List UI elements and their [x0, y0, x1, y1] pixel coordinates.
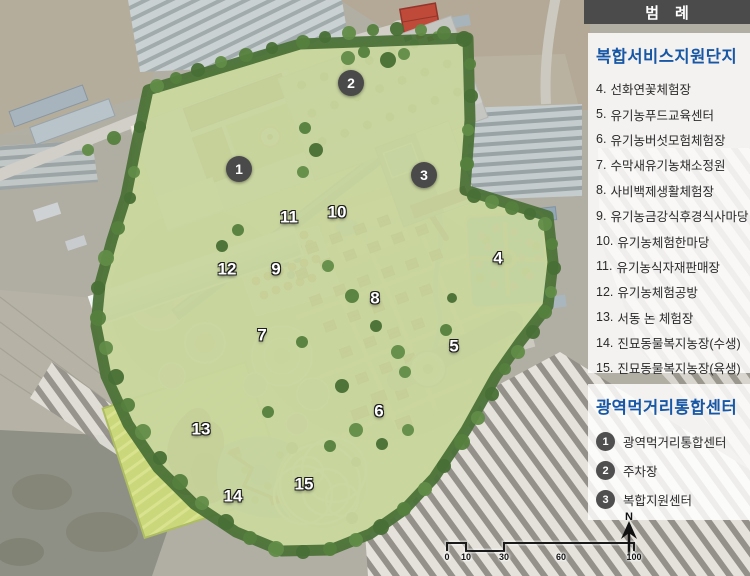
legend-badge-3: 3 — [596, 490, 615, 509]
legend-panel-center: 광역먹거리통합센터 1광역먹거리통합센터2주차장3복합지원센터 — [588, 384, 750, 520]
legend-item-11: 11.유기농식자재판매장 — [596, 254, 746, 279]
map-number-9: 9 — [271, 261, 280, 278]
north-label: N — [625, 511, 633, 523]
legend-item-9: 9.유기농금강식후경식사마당 — [596, 203, 746, 228]
map-number-4: 4 — [493, 250, 502, 267]
map-badge-2: 2 — [338, 70, 364, 96]
legend-item-center-2: 2주차장 — [596, 456, 746, 485]
site-plan-map: 123456789101112131415 범례 복합서비스지원단지 4.선화연… — [0, 0, 750, 576]
legend-title-bar: 범례 — [584, 0, 750, 24]
map-badge-1: 1 — [226, 156, 252, 182]
map-number-10: 10 — [328, 204, 347, 221]
scale-label-10: 10 — [461, 552, 471, 562]
legend-item-6: 6.유기농버섯모험체험장 — [596, 127, 746, 152]
legend-heading-complex: 복합서비스지원단지 — [596, 43, 746, 67]
legend-item-7: 7.수막새유기농채소정원 — [596, 152, 746, 177]
legend-item-13: 13.서동 논 체험장 — [596, 305, 746, 330]
legend-item-10: 10.유기농체험한마당 — [596, 228, 746, 253]
legend-item-8: 8.사비백제생활체험장 — [596, 178, 746, 203]
map-number-5: 5 — [449, 338, 458, 355]
legend-list-complex: 4.선화연꽃체험장5.유기농푸드교육센터6.유기농버섯모험체험장7.수막새유기농… — [596, 76, 746, 381]
map-number-11: 11 — [280, 209, 298, 226]
map-number-12: 12 — [218, 261, 237, 278]
scale-label-60: 60 — [556, 552, 566, 562]
map-badge-3: 3 — [411, 162, 437, 188]
legend-list-center: 1광역먹거리통합센터2주차장3복합지원센터 — [596, 427, 746, 514]
legend-heading-center: 광역먹거리통합센터 — [596, 394, 746, 418]
map-number-6: 6 — [374, 403, 383, 420]
legend-item-5: 5.유기농푸드교육센터 — [596, 101, 746, 126]
legend-item-12: 12.유기농체험공방 — [596, 279, 746, 304]
legend-title: 범례 — [629, 2, 705, 23]
legend-item-center-1: 1광역먹거리통합센터 — [596, 427, 746, 456]
legend-badge-2: 2 — [596, 461, 615, 480]
legend-item-4: 4.선화연꽃체험장 — [596, 76, 746, 101]
legend-item-15: 15.진묘동물복지농장(육생) — [596, 355, 746, 380]
map-number-7: 7 — [257, 327, 266, 344]
legend-badge-1: 1 — [596, 432, 615, 451]
scale-label-0: 0 — [444, 552, 449, 562]
legend-panel-complex: 복합서비스지원단지 4.선화연꽃체험장5.유기농푸드교육센터6.유기농버섯모험체… — [588, 33, 750, 373]
map-number-8: 8 — [370, 290, 379, 307]
legend-item-14: 14.진묘동물복지농장(수생) — [596, 330, 746, 355]
scale-label-100: 100 — [626, 552, 641, 562]
map-number-15: 15 — [295, 476, 314, 493]
scale-label-30: 30 — [499, 552, 509, 562]
map-number-14: 14 — [224, 488, 243, 505]
legend-item-center-3: 3복합지원센터 — [596, 485, 746, 514]
map-number-13: 13 — [192, 421, 211, 438]
